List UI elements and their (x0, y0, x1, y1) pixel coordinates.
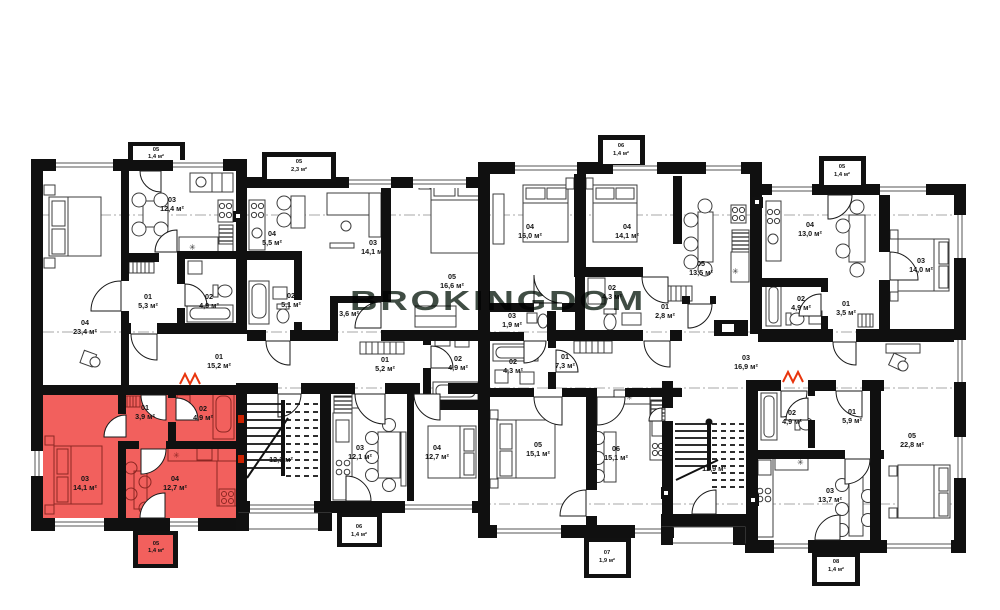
svg-text:03: 03 (742, 353, 750, 362)
svg-text:06: 06 (618, 143, 625, 149)
svg-text:06: 06 (612, 444, 620, 453)
svg-text:02: 02 (199, 404, 207, 413)
svg-text:3,5 м²: 3,5 м² (836, 308, 856, 317)
svg-text:2,3 м²: 2,3 м² (291, 166, 307, 173)
svg-text:12,7 м²: 12,7 м² (163, 483, 187, 492)
svg-text:04: 04 (81, 318, 89, 327)
svg-text:12,1 м²: 12,1 м² (348, 452, 372, 461)
svg-text:✳: ✳ (797, 458, 804, 467)
svg-text:13,0 м²: 13,0 м² (798, 229, 822, 238)
svg-text:05: 05 (296, 159, 303, 165)
svg-text:08: 08 (833, 559, 840, 565)
svg-text:4,9 м²: 4,9 м² (199, 301, 219, 310)
svg-text:23,4 м²: 23,4 м² (73, 327, 97, 336)
svg-text:14,0 м²: 14,0 м² (909, 265, 933, 274)
svg-text:1,4 м²: 1,4 м² (613, 150, 629, 157)
svg-text:4,3 м²: 4,3 м² (503, 366, 523, 375)
svg-text:01: 01 (661, 302, 669, 311)
svg-text:04: 04 (433, 443, 441, 452)
svg-text:05: 05 (908, 431, 916, 440)
svg-text:04: 04 (806, 220, 814, 229)
svg-text:5,2 м²: 5,2 м² (375, 364, 395, 373)
svg-text:12,9 м²: 12,9 м² (702, 464, 726, 473)
svg-text:15,2 м²: 15,2 м² (207, 361, 231, 370)
svg-text:01: 01 (848, 407, 856, 416)
svg-text:14,1 м²: 14,1 м² (615, 231, 639, 240)
svg-text:02: 02 (788, 408, 796, 417)
svg-text:03: 03 (917, 256, 925, 265)
svg-text:06: 06 (356, 524, 363, 530)
svg-text:1,4 м²: 1,4 м² (828, 566, 844, 573)
svg-text:16,9 м²: 16,9 м² (734, 362, 758, 371)
svg-text:1,4 м²: 1,4 м² (148, 153, 164, 160)
svg-text:4,9 м²: 4,9 м² (448, 363, 468, 372)
svg-text:05: 05 (448, 272, 456, 281)
svg-text:05: 05 (534, 440, 542, 449)
svg-text:02: 02 (797, 294, 805, 303)
svg-text:1,9 м²: 1,9 м² (599, 557, 615, 564)
svg-text:4,9 м²: 4,9 м² (791, 303, 811, 312)
svg-text:03: 03 (168, 195, 176, 204)
svg-text:01: 01 (141, 403, 149, 412)
svg-text:04: 04 (171, 474, 179, 483)
svg-text:03: 03 (826, 486, 834, 495)
svg-text:4,9 м²: 4,9 м² (782, 417, 802, 426)
svg-text:01: 01 (381, 355, 389, 364)
svg-text:12,4 м²: 12,4 м² (160, 204, 184, 213)
svg-text:01: 01 (561, 352, 569, 361)
svg-text:5,9 м²: 5,9 м² (842, 416, 862, 425)
svg-text:04: 04 (623, 222, 631, 231)
svg-text:02: 02 (287, 291, 295, 300)
svg-text:3,9 м²: 3,9 м² (135, 412, 155, 421)
svg-text:4,9 м²: 4,9 м² (193, 413, 213, 422)
svg-text:01: 01 (144, 292, 152, 301)
svg-text:16,0 м²: 16,0 м² (518, 231, 542, 240)
svg-text:05: 05 (153, 147, 160, 153)
svg-text:12,1 м²: 12,1 м² (269, 455, 293, 464)
svg-text:15,1 м²: 15,1 м² (604, 453, 628, 462)
svg-text:14,1 м²: 14,1 м² (73, 483, 97, 492)
svg-text:03: 03 (356, 443, 364, 452)
svg-text:01: 01 (215, 352, 223, 361)
svg-text:13,7 м²: 13,7 м² (818, 495, 842, 504)
svg-text:05: 05 (153, 541, 160, 547)
svg-text:1,4 м²: 1,4 м² (834, 171, 850, 178)
svg-text:5,3 м²: 5,3 м² (138, 301, 158, 310)
svg-text:05: 05 (697, 259, 705, 268)
svg-text:1,4 м²: 1,4 м² (148, 547, 164, 554)
svg-text:1,4 м²: 1,4 м² (351, 531, 367, 538)
svg-text:07: 07 (604, 550, 610, 556)
svg-text:22,8 м²: 22,8 м² (900, 440, 924, 449)
svg-text:04: 04 (268, 229, 276, 238)
svg-text:12,7 м²: 12,7 м² (425, 452, 449, 461)
svg-text:05: 05 (839, 164, 846, 170)
svg-text:BROKINGDOM: BROKINGDOM (350, 285, 646, 316)
svg-text:02: 02 (205, 292, 213, 301)
svg-text:5,1 м²: 5,1 м² (281, 300, 301, 309)
svg-text:1,9 м²: 1,9 м² (502, 320, 522, 329)
svg-text:01: 01 (842, 299, 850, 308)
svg-text:02: 02 (454, 354, 462, 363)
svg-text:15,1 м²: 15,1 м² (526, 449, 550, 458)
svg-text:✳: ✳ (173, 451, 180, 460)
svg-text:2,8 м²: 2,8 м² (655, 311, 675, 320)
svg-text:13,5 м²: 13,5 м² (689, 268, 713, 277)
svg-text:04: 04 (526, 222, 534, 231)
svg-text:02: 02 (509, 357, 517, 366)
svg-text:5,5 м²: 5,5 м² (262, 238, 282, 247)
svg-text:03: 03 (81, 474, 89, 483)
svg-text:14,1 м²: 14,1 м² (361, 247, 385, 256)
svg-text:✳: ✳ (189, 243, 196, 252)
svg-text:✳: ✳ (732, 267, 739, 276)
svg-text:03: 03 (369, 238, 377, 247)
svg-text:7,3 м²: 7,3 м² (555, 361, 575, 370)
